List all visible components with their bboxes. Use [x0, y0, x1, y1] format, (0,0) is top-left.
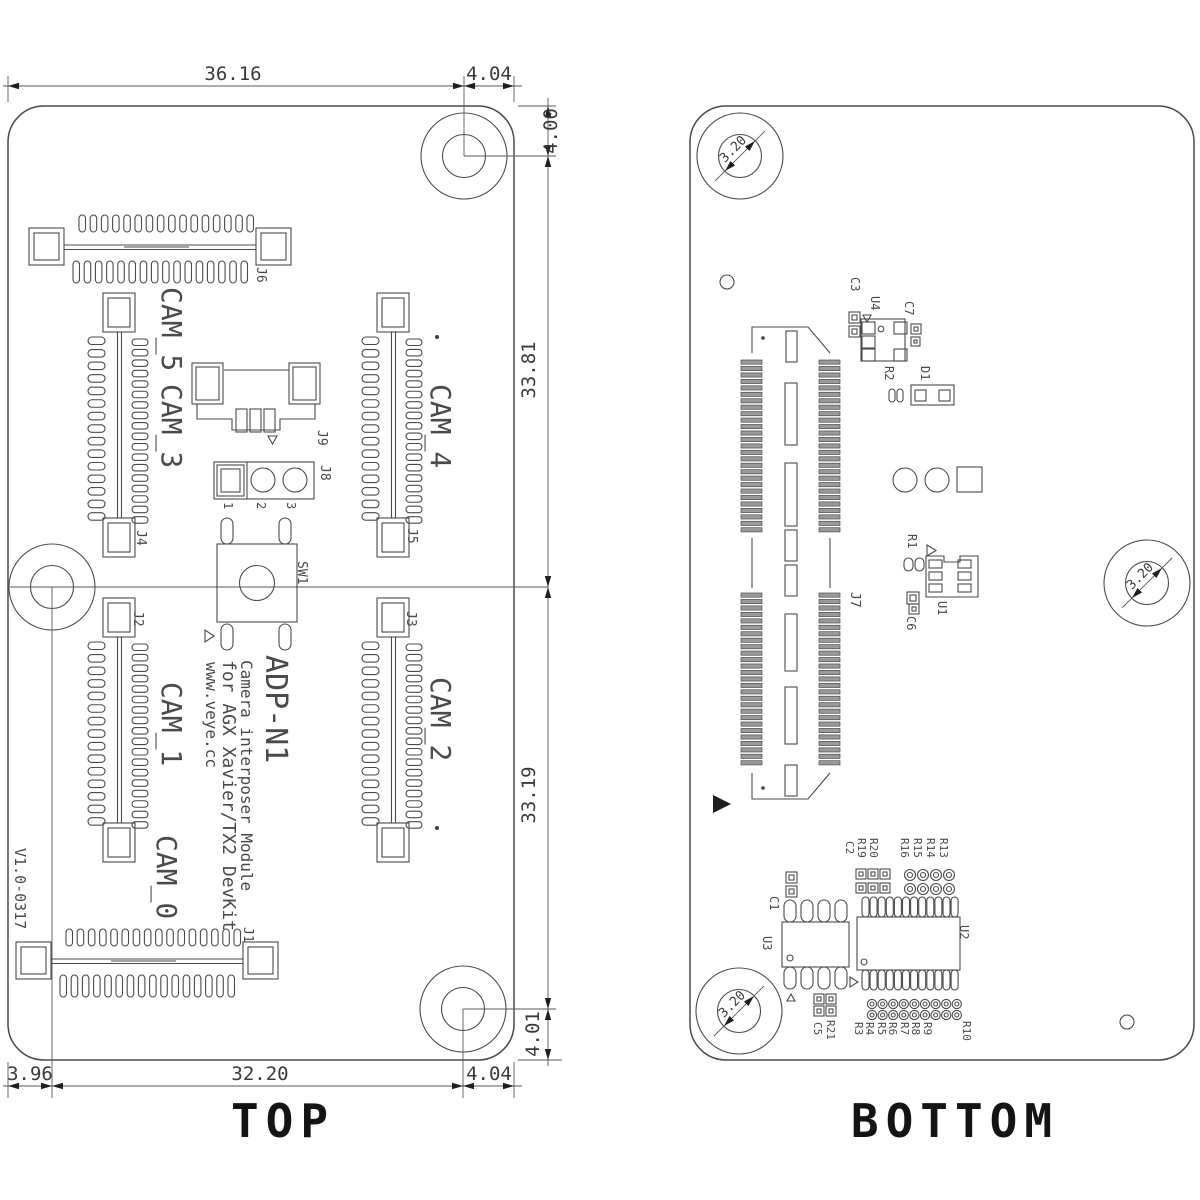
dim-right-lower: 33.19	[518, 766, 540, 823]
bottom-view-title: BOTTOM	[851, 1094, 1059, 1148]
ref-j4: J4	[133, 530, 148, 546]
label-cam4: CAM_4	[423, 384, 457, 468]
hole-diameter-mid-right: 3.20	[1124, 560, 1157, 593]
ref-j6: J6	[253, 267, 268, 283]
ref-sw1: SW1	[294, 561, 309, 584]
dim-top-main: 36.16	[204, 63, 261, 85]
silkscreen-line2: for AGX Xavier/TX2 DevKit	[218, 660, 239, 931]
ref-c2: C2	[843, 841, 856, 854]
ref-r14: R14	[924, 838, 937, 858]
ref-r10: R10	[960, 1021, 973, 1041]
jumper-pin-2: 2	[254, 502, 268, 509]
ref-j2: J2	[130, 611, 145, 627]
ref-c1: C1	[767, 896, 781, 910]
ref-r4: R4	[863, 1022, 876, 1036]
ref-u2: U2	[957, 925, 971, 939]
label-cam2: CAM_2	[423, 677, 457, 761]
pcb-mechanical-drawing: 36.16 4.04 4.00 33.81 33.19 4.01 3.96 32…	[0, 0, 1200, 1200]
ref-c7: C7	[902, 301, 916, 315]
top-view-geometry	[3, 76, 562, 1098]
hole-diameter-top-left: 3.20	[717, 133, 750, 166]
ref-r13: R13	[937, 838, 950, 858]
ref-c6: C6	[904, 616, 918, 630]
dim-right-upper: 33.81	[518, 341, 540, 398]
ref-c5: C5	[811, 1022, 824, 1035]
ref-c3: C3	[848, 277, 862, 291]
ref-j3: J3	[403, 611, 418, 627]
ref-u1: U1	[935, 601, 949, 615]
jumper-pin-3: 3	[284, 502, 298, 509]
ref-r19: R19	[855, 838, 868, 858]
silkscreen-model: ADP-N1	[258, 655, 293, 763]
ref-r9: R9	[921, 1022, 934, 1035]
label-cam5: CAM_5	[154, 287, 188, 371]
ref-r6: R6	[886, 1022, 899, 1035]
ref-j8: J8	[317, 465, 332, 481]
ref-j1: J1	[240, 927, 255, 943]
silkscreen-line1: Camera interposer Module	[237, 660, 256, 891]
ref-j7: J7	[847, 592, 862, 608]
ref-u4: U4	[868, 296, 882, 310]
ref-j9: J9	[314, 430, 329, 446]
dim-bottom-left: 3.96	[7, 1063, 53, 1085]
ref-d1: D1	[918, 366, 932, 380]
ref-r16: R16	[898, 838, 911, 858]
ref-r2: R2	[882, 366, 896, 380]
ref-u3: U3	[760, 936, 774, 950]
jumper-pin-1: 1	[221, 502, 235, 509]
dim-bottom-main: 32.20	[231, 1063, 288, 1085]
silkscreen-version: V1.0-0317	[11, 848, 29, 929]
drawing-canvas: 36.16 4.04 4.00 33.81 33.19 4.01 3.96 32…	[0, 0, 1200, 1200]
ref-r20: R20	[867, 838, 880, 858]
ref-r21: R21	[824, 1020, 837, 1040]
ref-r1: R1	[905, 534, 919, 548]
top-view-title: TOP	[231, 1094, 335, 1148]
dim-bottom-offset: 4.04	[466, 1063, 512, 1085]
bottom-view: 3.20 3.20 3.20 C3 U4 C7 R2 D1 R1 U1 C6 J…	[690, 106, 1194, 1148]
label-cam1: CAM_1	[154, 682, 188, 766]
dim-right-top: 4.00	[540, 108, 562, 154]
hole-diameter-bottom-left: 3.20	[716, 988, 749, 1021]
top-view: 36.16 4.04 4.00 33.81 33.19 4.01 3.96 32…	[3, 63, 562, 1148]
label-cam0: CAM_0	[149, 835, 183, 919]
dim-top-offset: 4.04	[466, 63, 512, 85]
bottom-view-geometry	[690, 106, 1194, 1060]
dim-right-bottom: 4.01	[522, 1011, 544, 1057]
ref-j5: J5	[404, 528, 419, 544]
label-cam3: CAM_3	[154, 384, 188, 468]
ref-r8: R8	[909, 1022, 922, 1035]
ref-r15: R15	[911, 838, 924, 858]
